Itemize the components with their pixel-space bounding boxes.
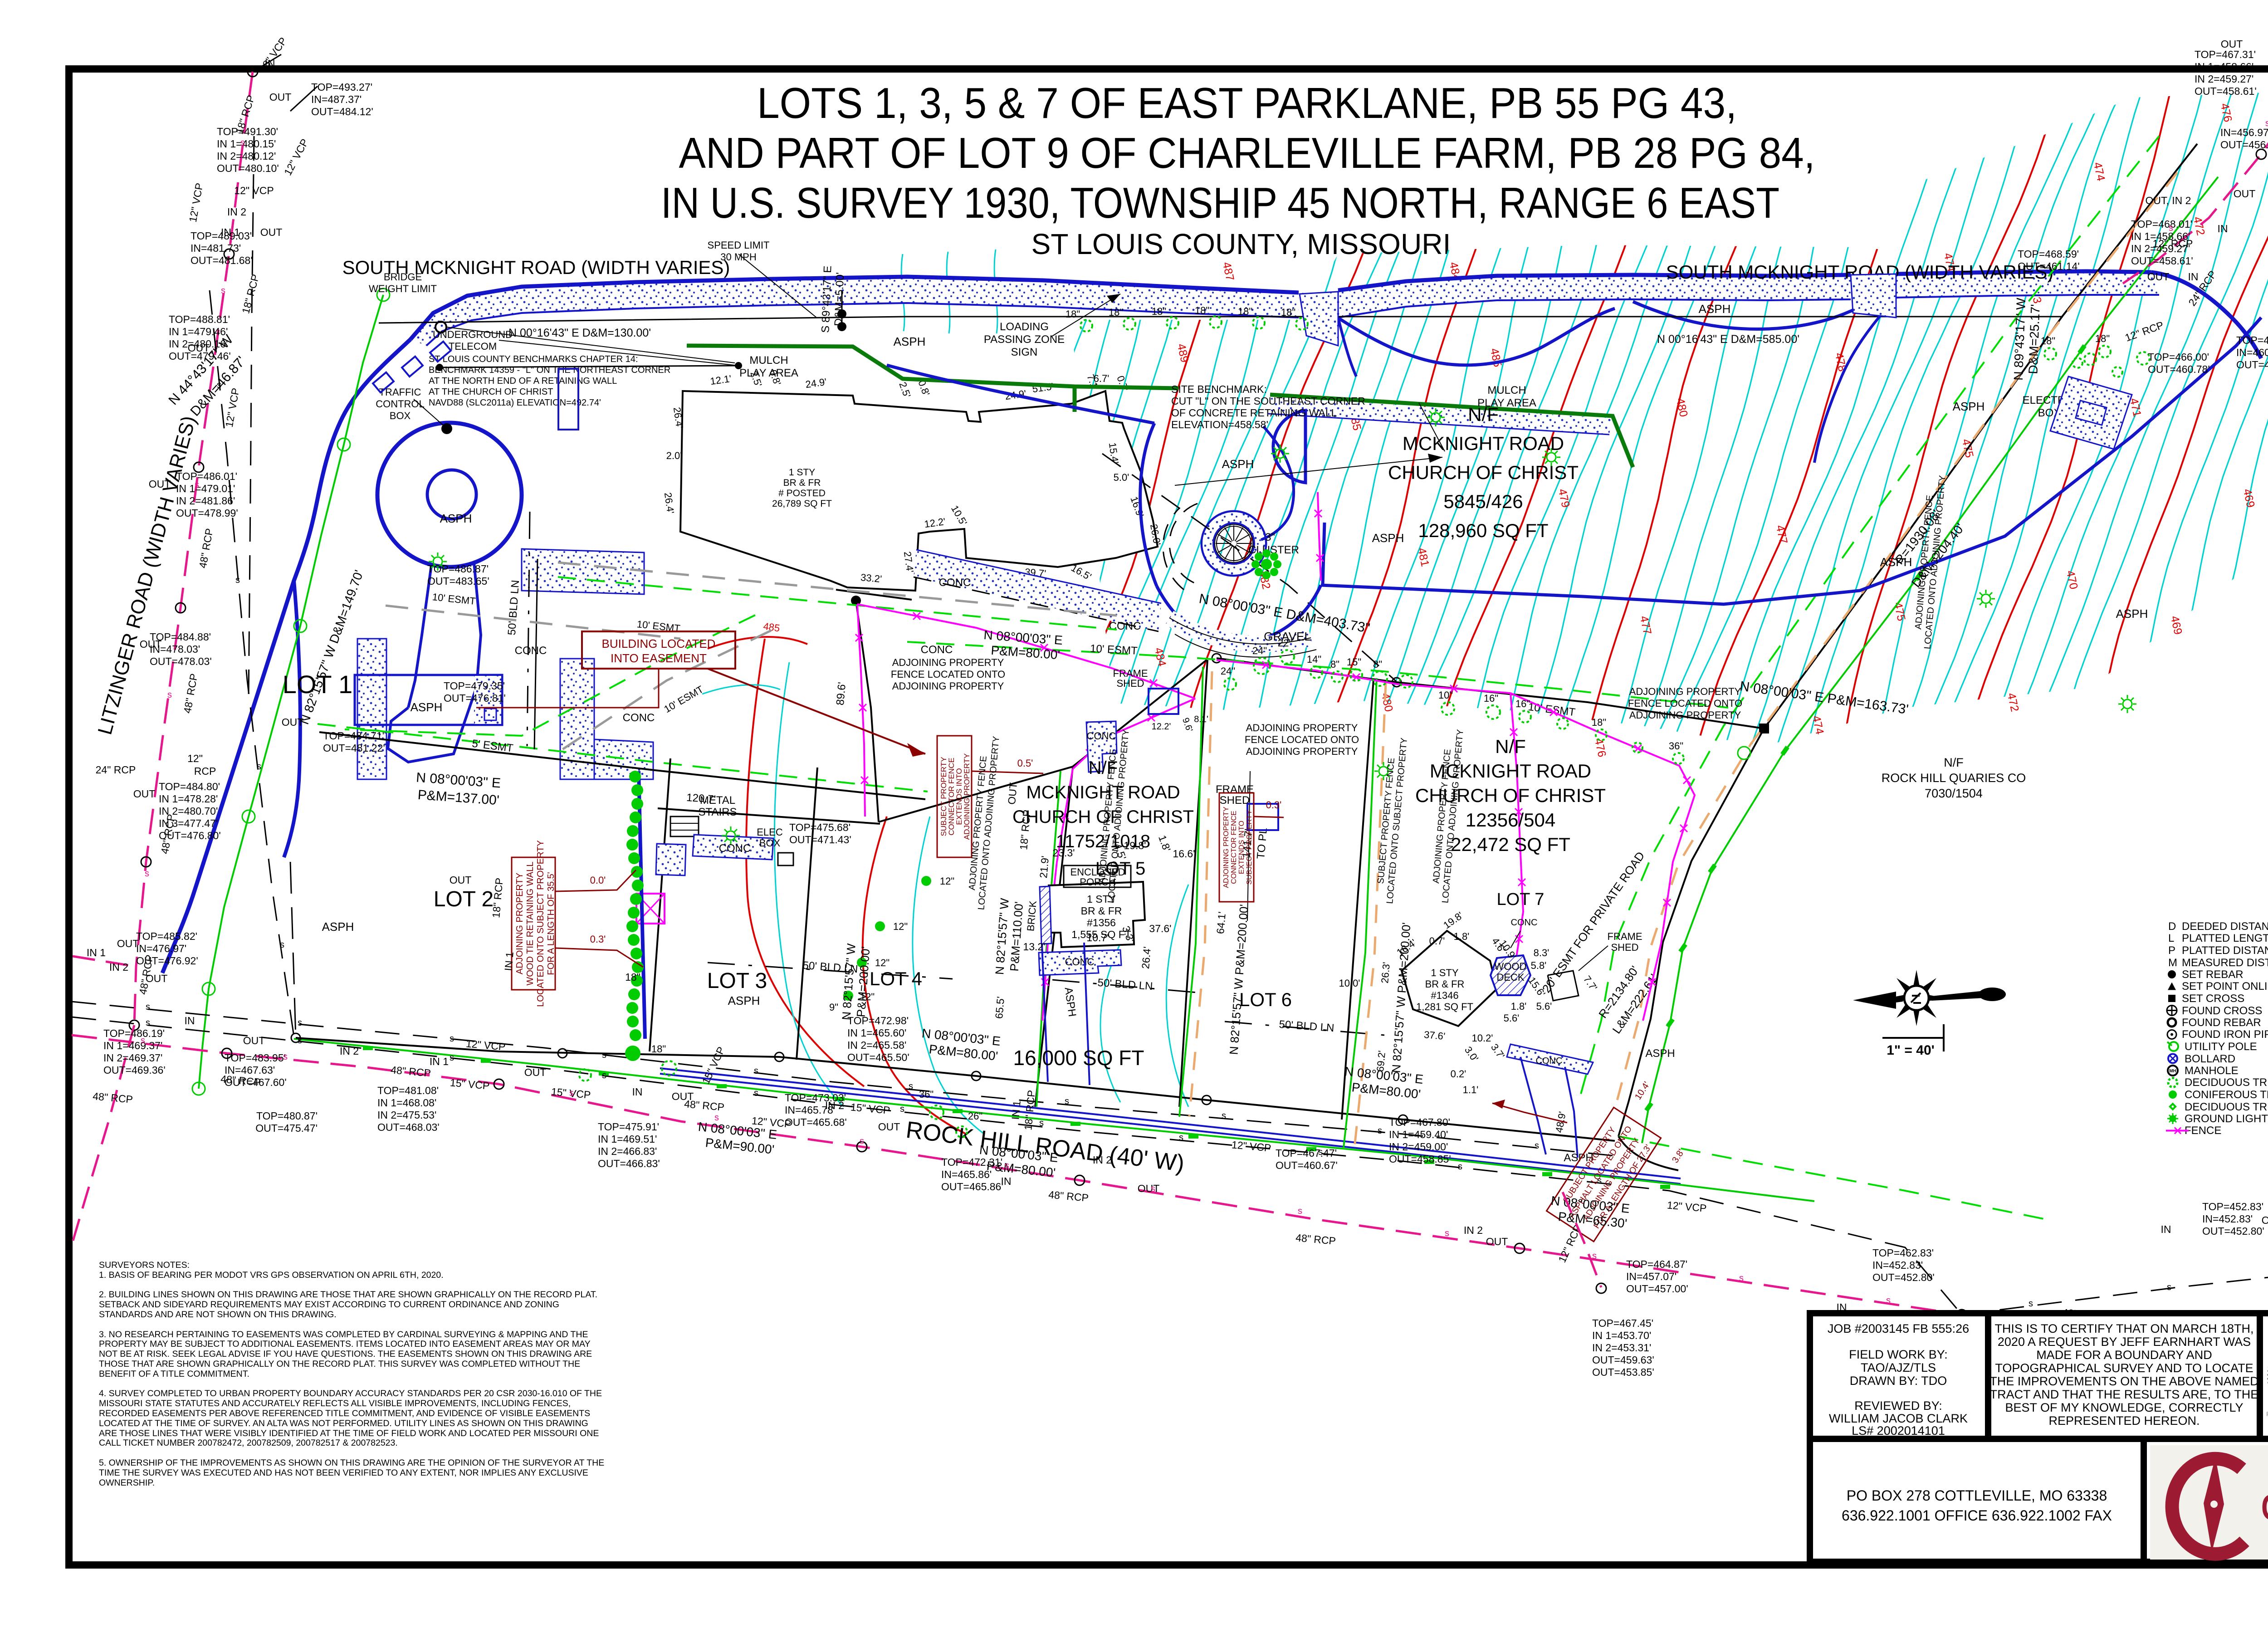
svg-text:N 89°43'17" W: N 89°43'17" W (2011, 298, 2028, 381)
svg-text:TOP=486.19': TOP=486.19' (103, 1027, 165, 1039)
svg-text:BR & FR: BR & FR (1081, 905, 1122, 917)
svg-text:2.0': 2.0' (666, 450, 682, 461)
svg-text:IN: IN (1001, 1175, 1012, 1187)
svg-text:CONC: CONC (1109, 620, 1141, 632)
svg-text:18": 18" (1066, 308, 1080, 320)
svg-text:OUT=475.47': OUT=475.47' (255, 1122, 318, 1134)
svg-text:AND PART OF LOT 9 OF CHARLEVIL: AND PART OF LOT 9 OF CHARLEVILLE FARM, P… (679, 129, 1815, 177)
svg-text:10": 10" (1438, 689, 1453, 701)
svg-text:D&M=5.00': D&M=5.00' (832, 272, 846, 327)
svg-text:IN=476.97': IN=476.97' (136, 943, 186, 954)
svg-text:IN=481.73': IN=481.73' (191, 242, 241, 254)
svg-text:SETBACK AND SIDEYARD REQUIREME: SETBACK AND SIDEYARD REQUIREMENTS MAY EX… (99, 1300, 559, 1310)
svg-text:ASPH: ASPH (1222, 457, 1254, 471)
svg-text:LOTS 1, 3, 5 & 7 OF EAST PARKL: LOTS 1, 3, 5 & 7 OF EAST PARKLANE, PB 55… (757, 79, 1737, 127)
svg-text:OUT: OUT (149, 478, 171, 490)
svg-text:N/F: N/F (1495, 736, 1526, 757)
svg-text:IN: IN (632, 1086, 643, 1098)
svg-text:s: s (221, 286, 225, 296)
svg-text:0.3': 0.3' (590, 934, 606, 945)
svg-text:CONNECTOR FENCE: CONNECTOR FENCE (1230, 811, 1238, 884)
svg-text:SITE BENCHMARK:: SITE BENCHMARK: (1171, 383, 1267, 395)
svg-text:ASPH: ASPH (1645, 1047, 1675, 1060)
svg-text:s: s (1597, 1176, 1602, 1186)
svg-text:MCKNIGHT ROAD: MCKNIGHT ROAD (1026, 782, 1180, 802)
svg-text:THOSE THAT ARE SHOWN GRAPHICAL: THOSE THAT ARE SHOWN GRAPHICALLY ON THE … (99, 1359, 580, 1369)
svg-text:WOOD TIE RETAINING WALL: WOOD TIE RETAINING WALL (525, 862, 535, 986)
svg-text:36": 36" (919, 1089, 934, 1100)
svg-text:D: D (2168, 920, 2176, 933)
svg-text:ASPH: ASPH (1699, 302, 1731, 316)
svg-text:18": 18" (1592, 717, 1606, 728)
svg-text:OUT=453.85': OUT=453.85' (1592, 1366, 1654, 1378)
svg-text:s: s (900, 1104, 904, 1114)
svg-text:8.1': 8.1' (1194, 714, 1208, 724)
svg-text:PLATTED LENGTH: PLATTED LENGTH (2182, 932, 2268, 944)
svg-text:IN: IN (185, 1015, 195, 1027)
svg-text:1 STY: 1 STY (789, 467, 815, 478)
svg-text:12": 12" (940, 875, 954, 887)
svg-text:CONTROL: CONTROL (376, 398, 425, 410)
svg-text:IN=487.37': IN=487.37' (311, 93, 362, 105)
svg-text:DEEDED DISTANCE: DEEDED DISTANCE (2182, 920, 2268, 933)
svg-text:5.6': 5.6' (1536, 1001, 1552, 1012)
svg-text:METAL: METAL (700, 794, 735, 807)
svg-text:89.6': 89.6' (834, 682, 848, 706)
svg-text:PROPERTY MAY BE SUBJECT TO ADD: PROPERTY MAY BE SUBJECT TO ADDITIONAL EA… (99, 1339, 591, 1349)
svg-text:s: s (2028, 1299, 2033, 1309)
svg-text:IN 1: IN 1 (430, 1056, 449, 1067)
svg-text:TOP=452.83': TOP=452.83' (2202, 1201, 2263, 1213)
svg-text:12" VCP: 12" VCP (234, 185, 274, 196)
svg-text:TOP=464.26': TOP=464.26' (2236, 334, 2268, 346)
svg-text:EXTENDS INTO: EXTENDS INTO (1238, 821, 1246, 874)
svg-text:OUT: OUT (140, 638, 162, 650)
svg-text:s: s (145, 869, 149, 879)
svg-text:0.7': 0.7' (1429, 935, 1445, 947)
svg-text:IN=457.07': IN=457.07' (1626, 1271, 1677, 1282)
svg-text:10.0': 10.0' (1339, 978, 1360, 989)
svg-text:s: s (754, 1066, 758, 1076)
svg-text:26.3': 26.3' (1379, 962, 1392, 984)
svg-text:TOP=472.31': TOP=472.31' (941, 1156, 1002, 1168)
svg-text:485: 485 (763, 621, 781, 634)
svg-text:ADJOINING PROPERTY: ADJOINING PROPERTY (515, 873, 525, 974)
svg-text:ADJOINING PROPERTY: ADJOINING PROPERTY (1222, 807, 1230, 888)
svg-text:SPEED LIMIT: SPEED LIMIT (708, 240, 770, 251)
svg-text:OUT=460.67': OUT=460.67' (1276, 1159, 1338, 1171)
svg-text:s: s (167, 690, 172, 700)
svg-text:1. BASIS OF BEARING PER MODOT: 1. BASIS OF BEARING PER MODOT VRS GPS OB… (99, 1270, 444, 1280)
svg-text:22,472 SQ FT: 22,472 SQ FT (1451, 834, 1570, 855)
svg-text:OUT=457.00': OUT=457.00' (1626, 1283, 1688, 1295)
svg-text:IN U.S. SURVEY 1930, TOWNSHIP: IN U.S. SURVEY 1930, TOWNSHIP 45 NORTH, … (661, 179, 1779, 227)
svg-text:s: s (1445, 1228, 1449, 1238)
svg-text:BR & FR: BR & FR (783, 478, 821, 488)
svg-text:OUT=465.86': OUT=465.86' (941, 1181, 1003, 1193)
svg-text:SHED: SHED (1611, 942, 1638, 953)
svg-text:FRAME: FRAME (1608, 931, 1642, 942)
svg-text:ELEC: ELEC (757, 826, 783, 838)
svg-text:s: s (217, 380, 221, 390)
svg-text:IN 1=469.37': IN 1=469.37' (103, 1040, 162, 1051)
svg-text:s: s (146, 1002, 150, 1012)
svg-text:0.3': 0.3' (1266, 799, 1282, 811)
svg-text:OUT=476.81': OUT=476.81' (444, 692, 506, 704)
svg-text:DECIDUOUS TREE: DECIDUOUS TREE (2185, 1076, 2268, 1089)
svg-text:LOT 3: LOT 3 (707, 969, 767, 993)
svg-text:IN 1=479.46': IN 1=479.46' (169, 326, 228, 337)
svg-text:L: L (2168, 932, 2174, 944)
svg-text:N/F: N/F (1089, 758, 1118, 778)
svg-text:ASPH: ASPH (728, 994, 760, 1007)
svg-text:WOOD: WOOD (1495, 961, 1527, 972)
svg-text:s: s (298, 1036, 302, 1046)
svg-text:5.6': 5.6' (1504, 1012, 1520, 1024)
svg-text:SHED: SHED (1220, 794, 1250, 807)
svg-text:CONC: CONC (623, 712, 655, 724)
svg-text:18": 18" (2095, 333, 2110, 344)
svg-text:Cardinal: Cardinal (2261, 1487, 2268, 1527)
svg-text:1.1': 1.1' (1463, 1084, 1479, 1095)
svg-text:JOB #2003145 FB 555:26: JOB #2003145 FB 555:26 (1828, 1322, 1969, 1335)
svg-text:OF CONCRETE RETAINING WALL: OF CONCRETE RETAINING WALL (1171, 407, 1337, 419)
svg-text:10.2': 10.2' (1471, 1032, 1493, 1044)
svg-text:CONC: CONC (921, 644, 953, 656)
svg-text:5.0': 5.0' (1114, 472, 1129, 483)
svg-text:SHED: SHED (1116, 678, 1144, 689)
svg-text:21.9': 21.9' (1037, 856, 1051, 879)
svg-text:1.8': 1.8' (1511, 1001, 1527, 1012)
svg-text:18": 18" (1195, 305, 1209, 316)
svg-text:ASPH: ASPH (894, 335, 926, 348)
svg-text:MULCH: MULCH (1487, 384, 1526, 396)
svg-text:ARE THOSE LINES THAT WERE VISI: ARE THOSE LINES THAT WERE VISIBLY IDENTI… (99, 1428, 599, 1438)
svg-text:TOP=493.27': TOP=493.27' (311, 81, 372, 93)
svg-text:THE IMPROVEMENTS ON THE ABOVE: THE IMPROVEMENTS ON THE ABOVE NAMED (1989, 1374, 2259, 1388)
svg-text:MULCH: MULCH (749, 354, 788, 367)
svg-text:OUT=465.68': OUT=465.68' (785, 1116, 847, 1128)
svg-text:OUT: OUT (1006, 782, 1019, 805)
svg-text:TOP=475.68': TOP=475.68' (789, 821, 850, 833)
svg-text:IN 2: IN 2 (227, 206, 246, 218)
svg-text:IN: IN (2218, 223, 2228, 235)
svg-text:OUT: OUT (524, 1066, 547, 1078)
svg-text:OUT: OUT (117, 938, 139, 949)
svg-text:ASPH: ASPH (1880, 555, 1912, 569)
svg-text:WILLIAM JACOB CLARK: WILLIAM JACOB CLARK (1829, 1412, 1968, 1425)
svg-text:18": 18" (1109, 307, 1123, 318)
svg-text:MEASURED DISTANCE: MEASURED DISTANCE (2182, 957, 2268, 969)
svg-text:OUT, IN 2: OUT, IN 2 (2146, 195, 2191, 206)
svg-text:6.7': 6.7' (1094, 373, 1110, 384)
svg-text:PROFESSIONAL LAND SURVEYOR: PROFESSIONAL LAND SURVEYOR (2266, 1410, 2268, 1418)
svg-text:OUT: OUT (146, 973, 168, 984)
svg-text:OUT=481.68': OUT=481.68' (191, 254, 253, 266)
svg-text:IN 1=459.40': IN 1=459.40' (1389, 1129, 1448, 1140)
svg-text:0.0': 0.0' (590, 875, 606, 886)
svg-text:ADJOINING PROPERTY: ADJOINING PROPERTY (963, 753, 971, 840)
svg-text:TOP=485.82': TOP=485.82' (136, 930, 197, 942)
svg-text:SURVEYORS NOTES:: SURVEYORS NOTES: (99, 1260, 190, 1270)
svg-text:FENCE LOCATED ONTO: FENCE LOCATED ONTO (1245, 734, 1359, 745)
svg-text:s: s (909, 1081, 913, 1091)
svg-text:REVIEWED BY:: REVIEWED BY: (1854, 1399, 1942, 1413)
svg-text:BOLLARD: BOLLARD (2185, 1053, 2235, 1065)
svg-text:ADJOINING PROPERTY: ADJOINING PROPERTY (892, 680, 1004, 692)
svg-text:1" = 40': 1" = 40' (1887, 1043, 1935, 1058)
svg-text:OUT=458.61': OUT=458.61' (2131, 255, 2193, 267)
svg-text:15": 15" (1347, 656, 1361, 668)
svg-text:1,281 SQ FT: 1,281 SQ FT (1416, 1001, 1473, 1012)
svg-text:LOCATED AT THE TIME OF SURVEY.: LOCATED AT THE TIME OF SURVEY. AN ALTA W… (99, 1418, 588, 1428)
svg-text:12" RCP: 12" RCP (2153, 238, 2193, 249)
svg-text:ADJOINING PROPERTY: ADJOINING PROPERTY (892, 657, 1004, 668)
svg-text:33.2': 33.2' (860, 572, 882, 585)
svg-text:OUT=478.03': OUT=478.03' (150, 655, 212, 667)
svg-text:IN=452.83': IN=452.83' (2202, 1213, 2253, 1225)
svg-text:ASPH: ASPH (411, 700, 443, 714)
svg-text:1 STY: 1 STY (1431, 967, 1458, 978)
svg-text:TOP=467.47': TOP=467.47' (1276, 1147, 1337, 1159)
svg-text:TOP=468.59': TOP=468.59' (2018, 248, 2079, 260)
svg-text:TOP=481.08': TOP=481.08' (377, 1085, 439, 1096)
svg-text:64.1': 64.1' (1214, 911, 1228, 934)
svg-text:#1346: #1346 (1431, 990, 1458, 1001)
svg-text:13.2': 13.2' (1023, 941, 1045, 953)
svg-text:FOR A LENGTH OF 35.5': FOR A LENGTH OF 35.5' (546, 872, 556, 975)
svg-text:s: s (425, 1068, 430, 1078)
svg-text:OUT: OUT (2221, 38, 2243, 50)
svg-text:IN 2: IN 2 (340, 1045, 359, 1057)
svg-text:IN 2: IN 2 (1093, 1154, 1112, 1166)
svg-text:BENEFIT OF A TITLE COMMITMENT.: BENEFIT OF A TITLE COMMITMENT. (99, 1369, 249, 1379)
svg-text:DRAWN BY: TDO: DRAWN BY: TDO (1850, 1374, 1947, 1388)
svg-text:s: s (602, 1050, 606, 1060)
svg-text:OUT: OUT (878, 1121, 900, 1133)
svg-text:IN 2=465.58': IN 2=465.58' (847, 1039, 906, 1051)
svg-text:IN 2=480.12': IN 2=480.12' (217, 150, 276, 162)
svg-text:ASPH: ASPH (1372, 531, 1404, 545)
svg-text:s: s (195, 480, 199, 490)
svg-text:s: s (450, 1053, 454, 1063)
svg-text:OUT: OUT (450, 874, 472, 886)
svg-text:FOUND IRON PIPE: FOUND IRON PIPE (2182, 1028, 2268, 1041)
svg-text:TOP=483.95': TOP=483.95' (225, 1052, 286, 1064)
svg-text:s: s (240, 138, 245, 148)
svg-text:GROUND LIGHT: GROUND LIGHT (2185, 1113, 2268, 1125)
svg-text:LOT 7: LOT 7 (1497, 890, 1545, 909)
svg-text:18": 18" (2041, 335, 2055, 347)
svg-text:12": 12" (187, 753, 203, 764)
svg-text:CONC: CONC (719, 842, 751, 855)
svg-text:CONC: CONC (1511, 918, 1538, 928)
svg-text:NAVD88 (SLC2011a) ELEVATION=49: NAVD88 (SLC2011a) ELEVATION=492.74' (429, 398, 601, 408)
svg-text:s: s (2265, 118, 2268, 128)
svg-text:18": 18" (1281, 307, 1295, 318)
svg-text:s: s (2167, 1282, 2171, 1292)
svg-text:OUT=471.43': OUT=471.43' (789, 834, 851, 846)
svg-text:CONC: CONC (515, 645, 547, 657)
svg-text:RCP: RCP (194, 765, 216, 777)
svg-text:OUT=481.22': OUT=481.22' (323, 742, 385, 754)
svg-text:IN: IN (2188, 271, 2199, 283)
svg-text:OUT=452.80': OUT=452.80' (1872, 1271, 1935, 1283)
svg-text:TOP=480.87': TOP=480.87' (256, 1110, 318, 1122)
svg-text:18": 18" (1238, 306, 1252, 317)
svg-text:PLAY AREA: PLAY AREA (739, 367, 798, 379)
svg-text:s: s (1222, 1111, 1226, 1121)
svg-text:IN 1: IN 1 (221, 226, 240, 238)
svg-text:IN 1=468.08': IN 1=468.08' (377, 1097, 436, 1109)
svg-text:SET REBAR: SET REBAR (2182, 968, 2244, 981)
svg-text:26,789 SQ FT: 26,789 SQ FT (772, 499, 832, 509)
svg-text:s: s (602, 1071, 606, 1081)
svg-text:STANDARDS AND ARE NOT SHOWN ON: STANDARDS AND ARE NOT SHOWN ON THIS DRAW… (99, 1310, 337, 1320)
svg-text:37.6': 37.6' (1149, 923, 1171, 934)
svg-text:AT THE CHURCH OF CHRIST: AT THE CHURCH OF CHRIST (429, 387, 553, 397)
svg-text:10' ESMT: 10' ESMT (1090, 642, 1138, 657)
svg-text:TRACT AND THAT THE RESULTS ARE: TRACT AND THAT THE RESULTS ARE, TO THE (1990, 1388, 2259, 1401)
svg-text:N 00°16'43" E D&M=585.00': N 00°16'43" E D&M=585.00' (1657, 333, 1799, 346)
svg-text:STAIRS: STAIRS (699, 806, 737, 818)
svg-text:OUT=452.80': OUT=452.80' (2202, 1225, 2264, 1237)
svg-text:TOP=472.98': TOP=472.98' (847, 1015, 909, 1027)
svg-text:WEIGHT LIMIT: WEIGHT LIMIT (369, 283, 437, 294)
svg-text:IN 2=475.53': IN 2=475.53' (377, 1109, 436, 1121)
svg-text:TOP=486.01': TOP=486.01' (176, 470, 237, 482)
svg-text:s: s (569, 1088, 574, 1098)
svg-text:LS# 2002014101: LS# 2002014101 (1852, 1424, 1945, 1437)
svg-text:PLATTED DISTANCE: PLATTED DISTANCE (2182, 944, 2268, 957)
svg-text:IN 2: IN 2 (825, 1100, 844, 1111)
svg-text:IN 2=466.83': IN 2=466.83' (598, 1145, 657, 1157)
svg-text:IN: IN (265, 58, 275, 69)
svg-text:ADJOINING PROPERTY: ADJOINING PROPERTY (1629, 709, 1741, 721)
svg-text:MANHOLE: MANHOLE (2185, 1065, 2239, 1077)
svg-text:FENCE: FENCE (2185, 1125, 2221, 1137)
svg-text:OUT: OUT (243, 1035, 265, 1046)
svg-text:12": 12" (893, 921, 908, 932)
svg-text:OUT: OUT (260, 226, 283, 238)
svg-text:CALL TICKET NUMBER 200782472,: CALL TICKET NUMBER 200782472, 200782509,… (99, 1438, 398, 1448)
svg-text:IN 2: IN 2 (109, 961, 128, 973)
svg-text:REPRESENTED HEREON.: REPRESENTED HEREON. (2048, 1414, 2200, 1428)
svg-text:LOT 2: LOT 2 (434, 887, 494, 911)
svg-text:16,000 SQ FT: 16,000 SQ FT (1013, 1046, 1144, 1070)
svg-text:636.922.1001 OFFICE 636.92: 636.922.1001 OFFICE 636.922.1002 FAX (1842, 1507, 2112, 1524)
svg-text:s: s (1151, 1184, 1155, 1194)
svg-text:s: s (235, 575, 240, 585)
svg-text:TAO/AJZ/TLS: TAO/AJZ/TLS (1861, 1361, 1936, 1374)
svg-text:IN 1: IN 1 (87, 947, 106, 958)
svg-text:ST LOUIS COUNTY, MISSOURI: ST LOUIS COUNTY, MISSOURI (1031, 228, 1451, 260)
svg-text:OUT=478.99': OUT=478.99' (176, 507, 238, 519)
svg-text:FENCE LOCATED ONTO: FENCE LOCATED ONTO (1628, 698, 1742, 709)
svg-text:5845/426: 5845/426 (1443, 491, 1523, 512)
svg-text:SET POINT ONLINE: SET POINT ONLINE (2182, 980, 2268, 993)
svg-text:OUT=456.63': OUT=456.63' (2220, 139, 2268, 151)
svg-text:s: s (1039, 1118, 1044, 1128)
svg-text:BUILDING LOCATED: BUILDING LOCATED (602, 637, 716, 650)
svg-text:BOX: BOX (759, 837, 781, 849)
svg-text:ASPH: ASPH (2116, 607, 2148, 621)
svg-text:N/F: N/F (1468, 404, 1499, 425)
svg-text:s: s (1298, 1206, 1302, 1216)
svg-text:S 89°43'17" E: S 89°43'17" E (819, 265, 834, 333)
svg-text:TELECOM: TELECOM (449, 341, 497, 352)
svg-text:s: s (146, 1018, 150, 1028)
svg-text:MISSOURI STATE STATUTES AND AC: MISSOURI STATE STATUTES AND ACCURATELY R… (99, 1398, 571, 1408)
svg-text:OUT: OUT (269, 91, 292, 103)
svg-text:FRAME: FRAME (1216, 783, 1254, 796)
svg-text:TIME THE SURVEY WAS EXECUTED A: TIME THE SURVEY WAS EXECUTED AND HAS NOT… (99, 1468, 588, 1478)
svg-text:18": 18" (651, 1043, 666, 1055)
svg-text:s: s (714, 1113, 719, 1123)
svg-text:16": 16" (1484, 693, 1498, 704)
svg-text:8": 8" (1373, 659, 1382, 670)
svg-text:TOPOGRAPHICAL SURVEY AND TO LO: TOPOGRAPHICAL SURVEY AND TO LOCATE (1995, 1361, 2253, 1375)
svg-text:5.8': 5.8' (1531, 960, 1547, 971)
svg-text:7030/1504: 7030/1504 (1925, 787, 1983, 800)
svg-text:OUT: OUT (133, 788, 156, 800)
svg-text:OUT=458.85': OUT=458.85' (1389, 1153, 1451, 1165)
svg-text:0.5': 0.5' (1017, 758, 1033, 769)
svg-text:IN 1=453.70': IN 1=453.70' (1592, 1330, 1651, 1341)
svg-text:s: s (1065, 1096, 1069, 1106)
svg-text:OUT=460.78': OUT=460.78' (2148, 363, 2210, 375)
svg-text:OUT: OUT (1138, 1183, 1160, 1194)
svg-text:TOP=462.83': TOP=462.83' (1872, 1247, 1934, 1259)
svg-text:SET CROSS: SET CROSS (2182, 993, 2244, 1005)
svg-text:s: s (1592, 1251, 1597, 1261)
svg-text:s: s (1535, 1141, 1539, 1151)
svg-text:18": 18" (625, 971, 640, 983)
svg-text:s: s (1179, 1133, 1183, 1143)
svg-text:MCKNIGHT ROAD: MCKNIGHT ROAD (1430, 760, 1591, 782)
svg-text:14": 14" (1307, 654, 1321, 665)
svg-text:s: s (860, 1136, 864, 1146)
svg-text:128,960 SQ FT: 128,960 SQ FT (1418, 520, 1548, 541)
svg-text:TOP=467.45': TOP=467.45' (1592, 1317, 1653, 1329)
svg-text:IN 2=459.27': IN 2=459.27' (2195, 73, 2253, 85)
svg-text:CHURCH OF CHRIST: CHURCH OF CHRIST (1415, 785, 1606, 806)
svg-text:16": 16" (1515, 698, 1530, 709)
svg-text:TOP=467.31': TOP=467.31' (2195, 49, 2256, 60)
svg-text:2020 A REQUEST BY JEFF EARNHAR: 2020 A REQUEST BY JEFF EARNHART WAS (1998, 1335, 2251, 1349)
svg-text:IN 1=469.51': IN 1=469.51' (598, 1133, 657, 1145)
svg-text:IN 2=469.37': IN 2=469.37' (103, 1052, 162, 1064)
svg-text:MH: MH (2169, 1069, 2176, 1074)
svg-text:IN 2: IN 2 (1464, 1224, 1483, 1236)
svg-text:SUBJECT PROPERTY: SUBJECT PROPERTY (1246, 810, 1253, 885)
svg-text:IN=452.83': IN=452.83' (1872, 1259, 1923, 1271)
svg-text:26.4': 26.4' (1139, 946, 1153, 969)
svg-text:IN 1=479.01': IN 1=479.01' (176, 483, 235, 494)
svg-text:CUT "L" ON THE SOUTHEAST CORNE: CUT "L" ON THE SOUTHEAST CORNER (1171, 395, 1365, 407)
svg-text:IN 1: IN 1 (502, 951, 516, 971)
svg-text:24" RCP: 24" RCP (96, 764, 136, 776)
svg-text:OUT: OUT (188, 342, 210, 354)
svg-text:ASPH: ASPH (440, 512, 472, 525)
svg-text:TOP=475.91': TOP=475.91' (598, 1121, 659, 1133)
svg-text:ROCK HILL QUARIES CO: ROCK HILL QUARIES CO (1882, 771, 2026, 785)
svg-text:8.3': 8.3' (1534, 947, 1549, 958)
svg-text:CONIFEROUS TREE: CONIFEROUS TREE (2185, 1089, 2268, 1101)
svg-text:OUT=465.50': OUT=465.50' (847, 1051, 909, 1063)
svg-text:OUT=469.36': OUT=469.36' (103, 1064, 166, 1076)
svg-text:OUT=461.14': OUT=461.14' (2018, 260, 2080, 272)
